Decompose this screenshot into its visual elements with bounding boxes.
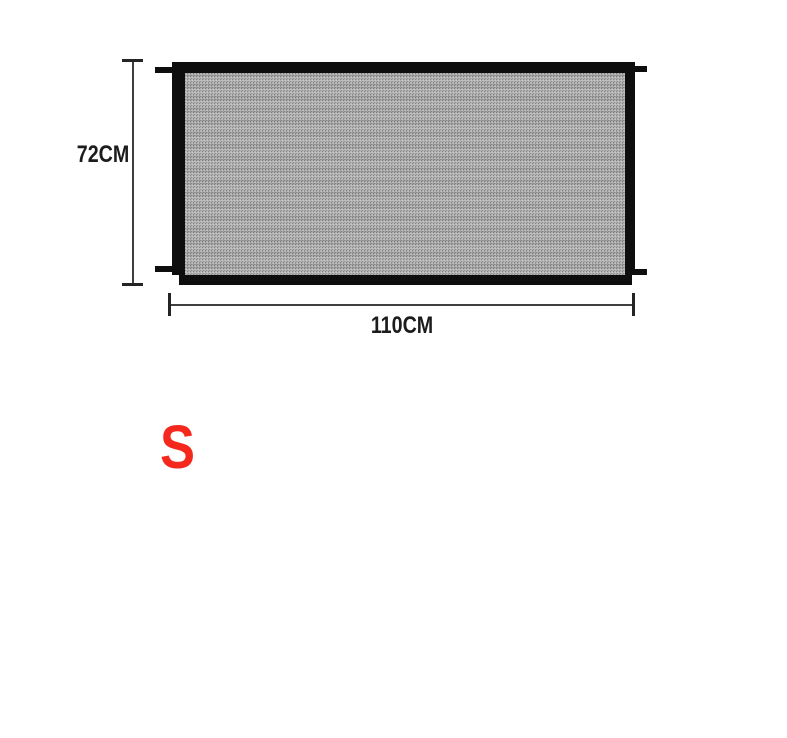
mount-tab-top-left: [155, 67, 174, 73]
mount-tab-bottom-right: [630, 269, 647, 275]
size-variant-letter: S: [160, 417, 198, 478]
product-size-diagram: 72CM 110CM S: [0, 0, 787, 738]
height-dimension-label: 72CM: [74, 141, 131, 169]
width-dimension-label: 110CM: [365, 312, 439, 340]
height-dimension-line: [132, 60, 134, 285]
mount-tab-bottom-left: [155, 266, 174, 272]
width-dimension-cap-left: [168, 293, 171, 316]
gate-mesh-panel: [185, 73, 625, 275]
height-dimension-cap-bottom: [122, 283, 143, 286]
height-dimension-cap-top: [122, 59, 143, 62]
gate-bottom-bar: [179, 275, 632, 285]
mount-tab-top-right: [631, 66, 647, 72]
width-dimension-line: [169, 304, 634, 306]
width-dimension-cap-right: [632, 293, 635, 316]
